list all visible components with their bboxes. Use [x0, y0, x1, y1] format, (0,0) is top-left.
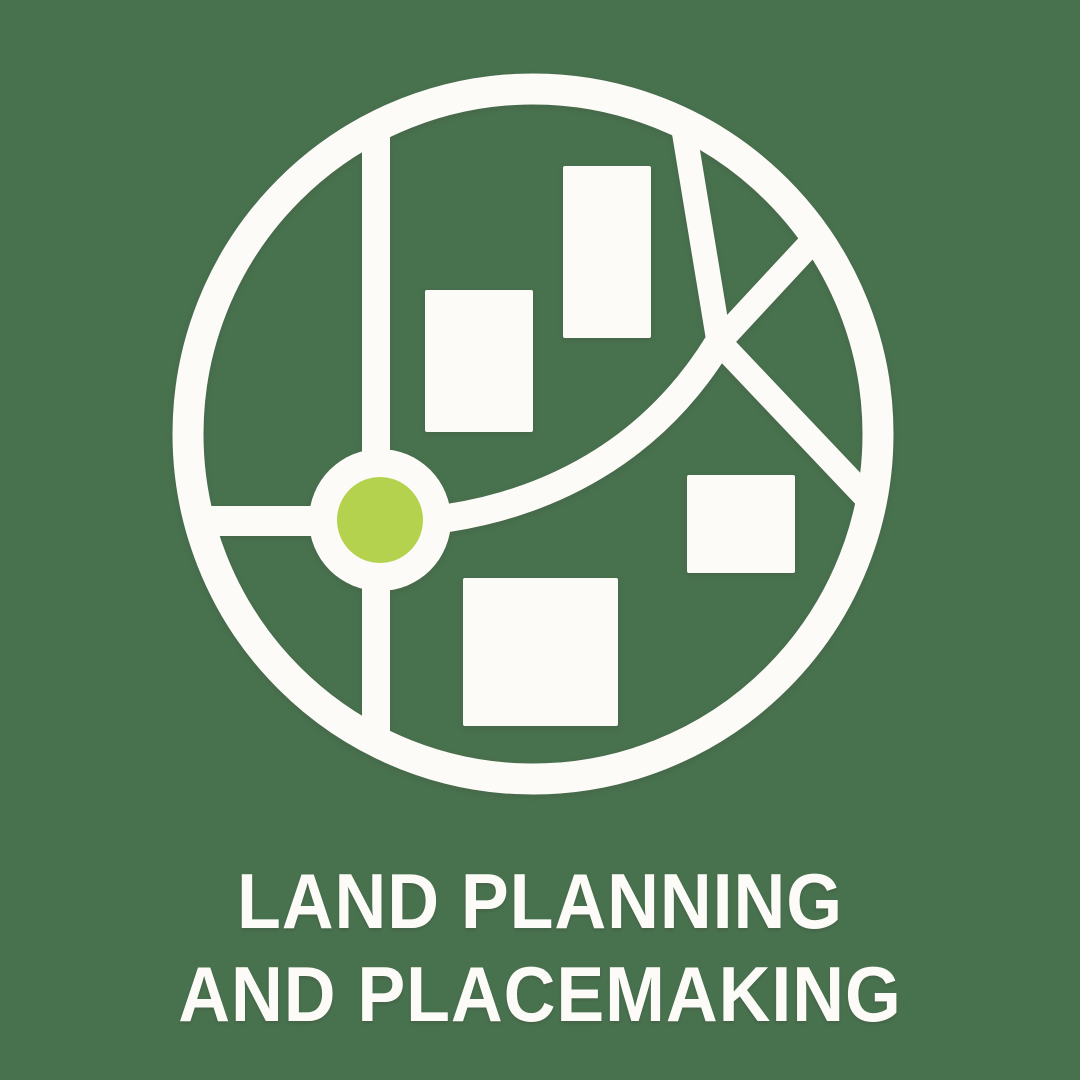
building-block-4 — [463, 578, 618, 726]
building-block-2 — [563, 166, 651, 338]
building-block-1 — [425, 290, 533, 432]
title-line-1: LAND PLANNING — [43, 855, 1037, 948]
title-line-2: AND PLACEMAKING — [43, 948, 1037, 1041]
building-block-3 — [687, 475, 795, 573]
title-block: LAND PLANNING AND PLACEMAKING — [0, 855, 1080, 1041]
roundabout-center-dot — [337, 477, 423, 563]
road-branch-upper — [719, 244, 810, 342]
road-branch-lower — [719, 342, 866, 497]
logo-canvas: LAND PLANNING AND PLACEMAKING — [0, 0, 1080, 1080]
